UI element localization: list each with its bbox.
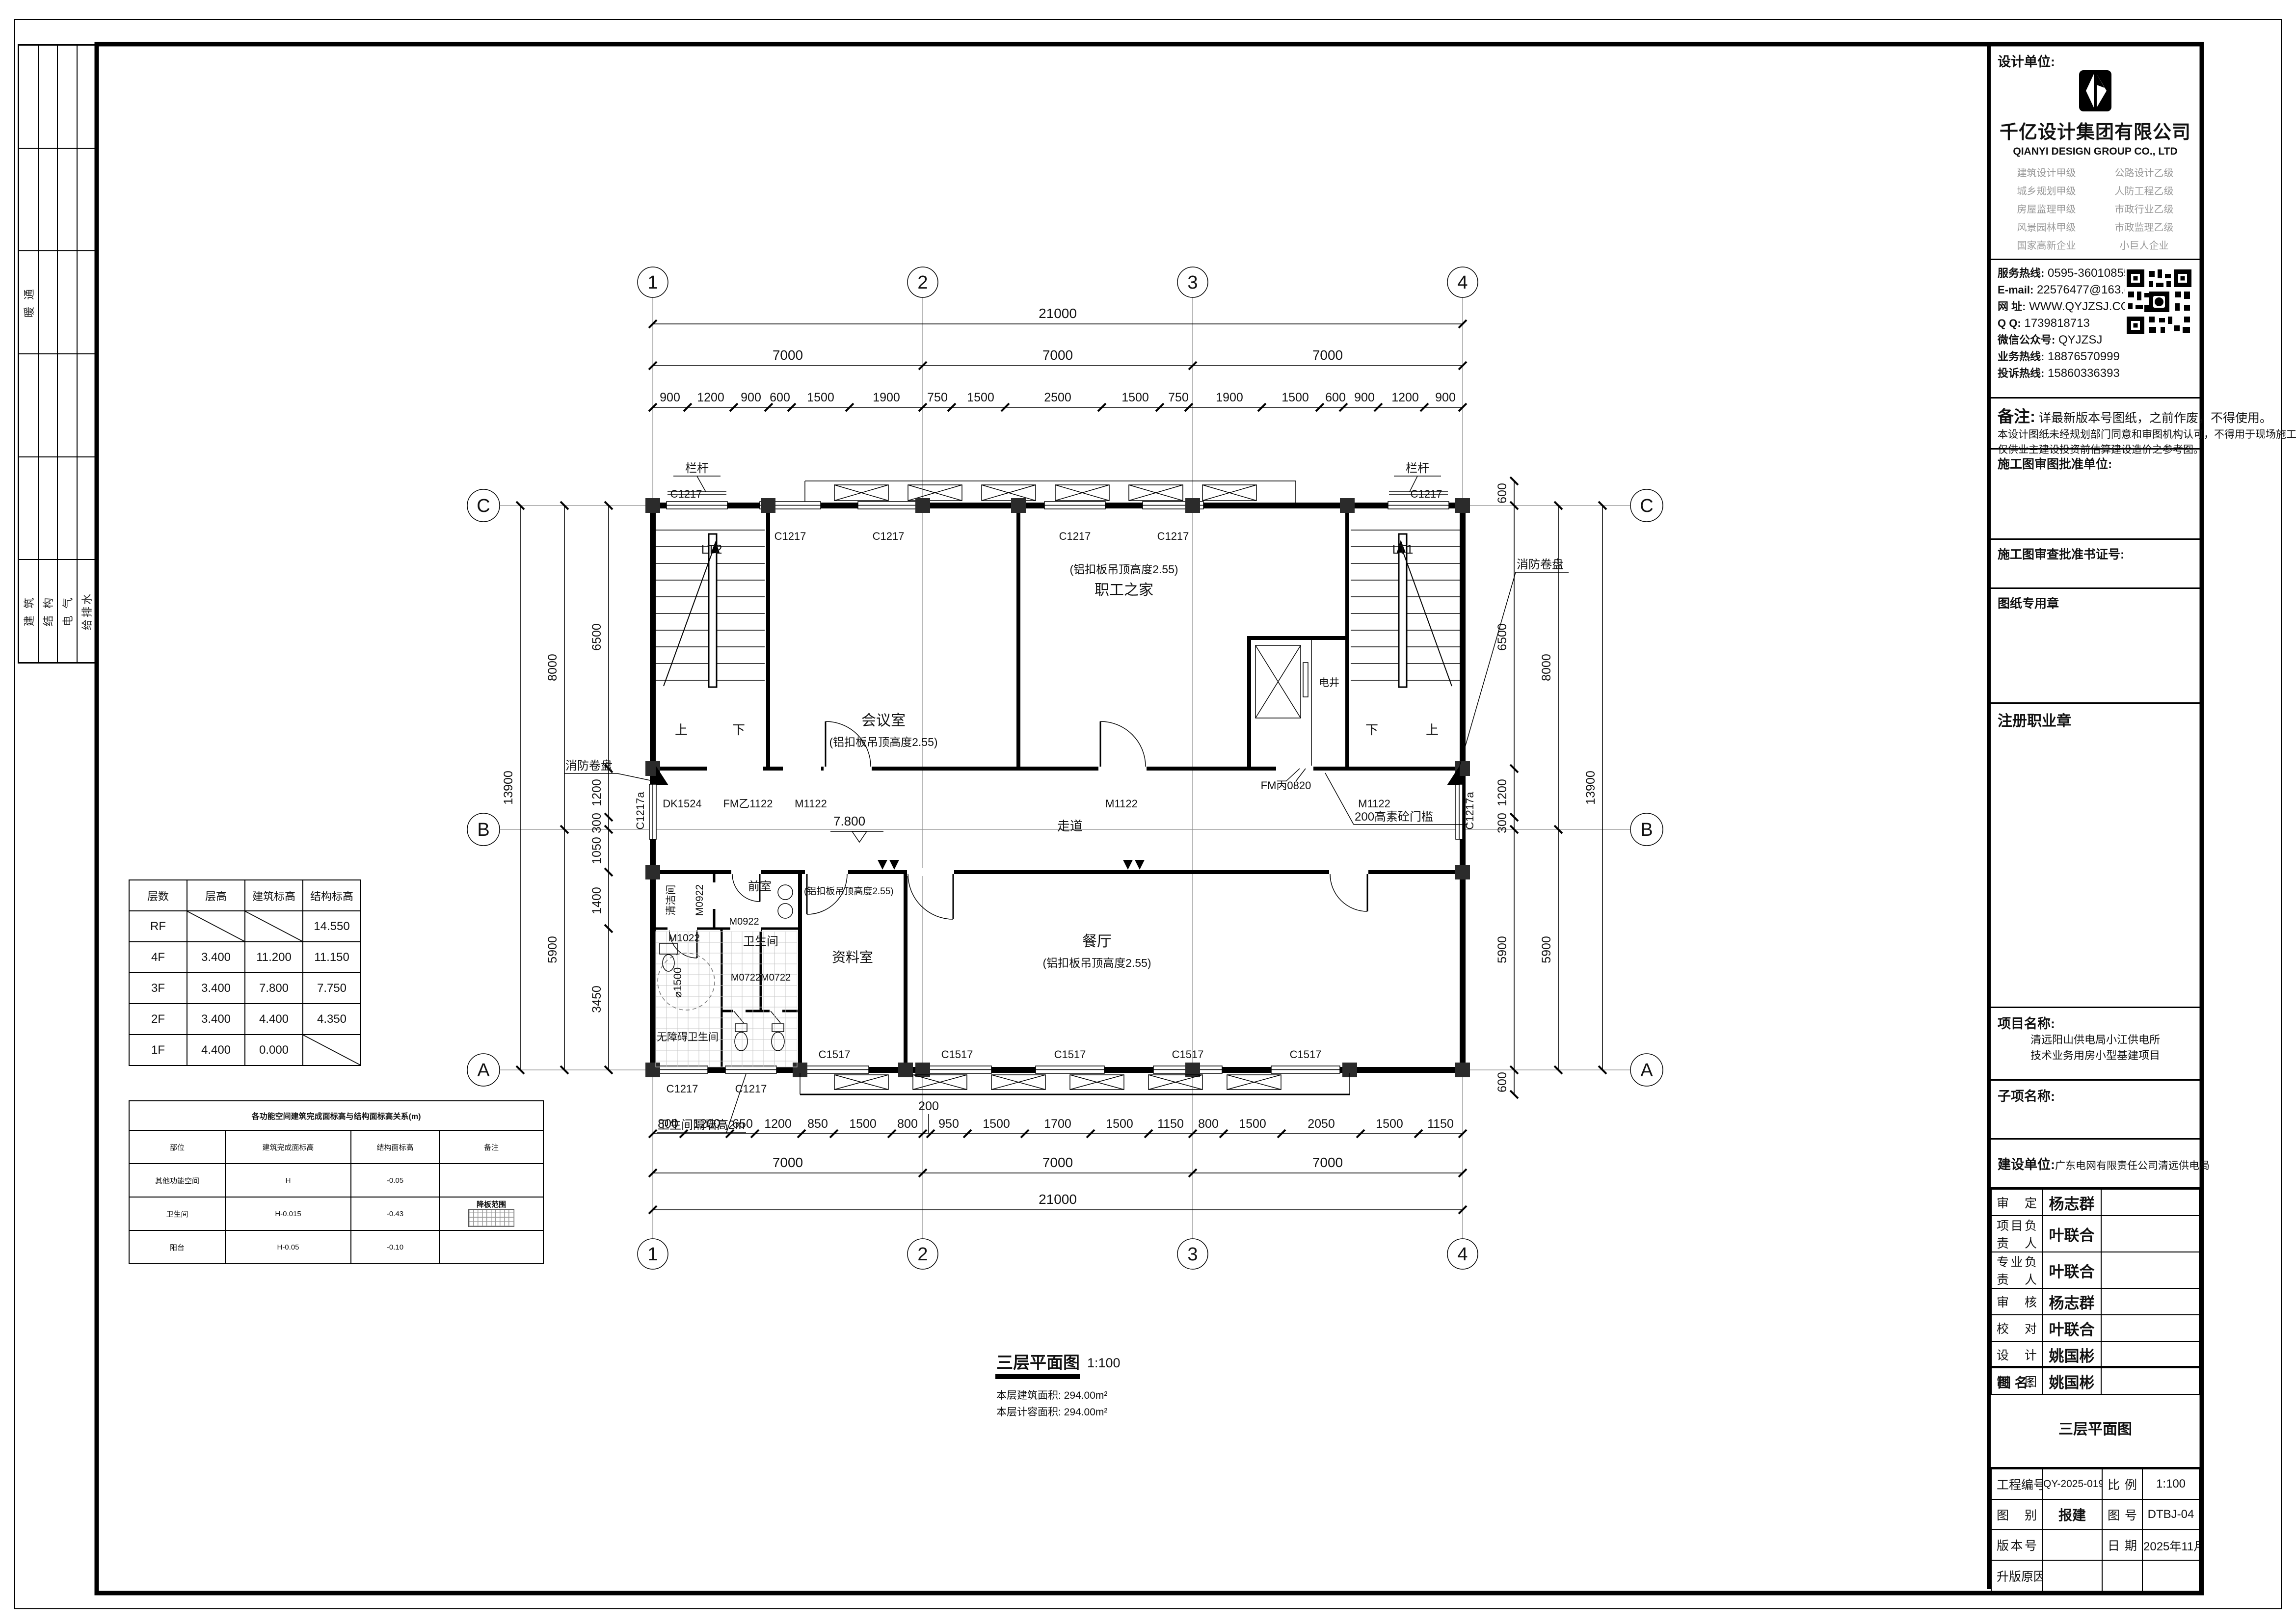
ceiling-note: (铝扣板吊顶高度2.55) bbox=[1069, 563, 1178, 576]
room-label: 会议室 bbox=[861, 713, 906, 729]
contact-label: 网 址: bbox=[1998, 300, 2026, 313]
sheet-info-section: 工程编号 QY-2025-019 比例 1:100 图别 报建 图号 DTBJ-… bbox=[1991, 1468, 2200, 1591]
personnel-name: 杨志群 bbox=[2042, 1288, 2101, 1315]
dim: 5900 bbox=[1540, 936, 1553, 963]
grid-label: A bbox=[1640, 1060, 1653, 1081]
strip-plumb: 给排水 bbox=[79, 592, 94, 630]
dim: 2050 bbox=[1308, 1117, 1335, 1131]
window-tag: C1217 bbox=[670, 488, 702, 500]
door-tag: FM乙1122 bbox=[723, 798, 773, 810]
dim: 1150 bbox=[1157, 1117, 1184, 1131]
dim: 1200 bbox=[1495, 779, 1509, 806]
balcony bbox=[800, 1073, 1350, 1094]
dim: 21000 bbox=[1039, 306, 1077, 321]
floor-cell: RF bbox=[129, 911, 187, 942]
grid-label: 3 bbox=[1187, 272, 1198, 293]
personnel-sign bbox=[2101, 1341, 2199, 1368]
sunken-slab-label: 降板范围 bbox=[440, 1199, 542, 1209]
floor-header: 层数 bbox=[129, 880, 187, 911]
dim: 1200 bbox=[590, 779, 604, 806]
remark-section: 备注: 详最新版本号图纸，之前作废，不得使用。 本设计图纸未经规划部门同意和审图… bbox=[1991, 399, 2200, 450]
grid-label: 1 bbox=[647, 1244, 658, 1265]
signature-strip: 暖 通 建 筑 结 构 电 气 给排水 bbox=[18, 44, 97, 664]
floor-cell: 3.400 bbox=[187, 942, 245, 973]
dim: 1500 bbox=[1376, 1117, 1403, 1131]
dim: 7000 bbox=[1312, 1155, 1343, 1170]
stair-label: LT2 bbox=[701, 542, 722, 557]
floor-cell: 3F bbox=[129, 973, 187, 1004]
dim: 300 bbox=[1495, 813, 1509, 833]
info-label: 比例 bbox=[2102, 1469, 2142, 1499]
stair-dir: 上 bbox=[1426, 722, 1439, 737]
qualification: 国家高新企业 bbox=[1998, 237, 2095, 255]
relation-cell: 卫生间 bbox=[129, 1197, 225, 1230]
floor-cell: 4.400 bbox=[187, 1035, 245, 1065]
shaft-label: 电井 bbox=[1319, 677, 1339, 689]
drawing-no-value: DTBJ-04 bbox=[2142, 1499, 2199, 1530]
personnel-sign bbox=[2101, 1189, 2199, 1216]
contact-label: 服务热线: bbox=[1998, 267, 2044, 279]
info-label: 工程编号 bbox=[1991, 1469, 2042, 1499]
drawing-sheet: 1 2 3 4 1 2 3 4 C B A C B A 21000 7000 7… bbox=[0, 0, 2296, 1624]
project-name-section: 项目名称: 清远阳山供电局小江供电所 技术业务用房小型基建项目 bbox=[1991, 1008, 2200, 1081]
sheet-border bbox=[15, 20, 2281, 1609]
floor-level-table: 层数 层高 建筑标高 结构标高 RF 14.550 4F 3.400 11.20… bbox=[129, 879, 361, 1066]
dim: 1200 bbox=[1391, 391, 1419, 404]
contact-value: WWW.QYJZSJ.COM bbox=[2029, 300, 2139, 313]
door-tag: M0722M0722 bbox=[731, 972, 791, 983]
dim: 1500 bbox=[967, 391, 994, 404]
floor-cell: 14.550 bbox=[303, 911, 361, 942]
qualification: 人防工程乙级 bbox=[2095, 183, 2193, 201]
dim: 600 bbox=[1495, 483, 1509, 504]
grid-label: B bbox=[1640, 820, 1653, 840]
dim: 7000 bbox=[773, 347, 803, 363]
remark-label: 备注: bbox=[1998, 407, 2035, 426]
door-tag: M1122 bbox=[1105, 798, 1138, 810]
window-tag: C1217 bbox=[1411, 488, 1442, 500]
stair-dir: 下 bbox=[732, 722, 745, 737]
contact-label: 投诉热线: bbox=[1998, 367, 2044, 379]
approval-no-section: 施工图审查批准书证号: bbox=[1991, 540, 2200, 589]
personnel-name: 叶联合 bbox=[2042, 1315, 2101, 1341]
window-tag: C1217a bbox=[1464, 792, 1476, 830]
dim: 1150 bbox=[1427, 1117, 1454, 1131]
personnel-sign bbox=[2101, 1216, 2199, 1252]
approval-unit-label: 施工图审图批准单位: bbox=[1998, 454, 2193, 472]
contact-value: 15860336393 bbox=[2048, 367, 2120, 380]
relation-cell: -0.43 bbox=[351, 1197, 439, 1230]
dim: 1200 bbox=[697, 391, 724, 404]
drawing-name-label: 图 名: bbox=[1998, 1372, 2193, 1391]
room-label: 走道 bbox=[1057, 819, 1083, 833]
approval-no-label: 施工图审查批准书证号: bbox=[1998, 545, 2193, 562]
project-no-value: QY-2025-019 bbox=[2042, 1469, 2102, 1499]
windows bbox=[649, 502, 1463, 1073]
contact-value: QYJZSJ bbox=[2058, 333, 2102, 346]
floor-cell: 0.000 bbox=[245, 1035, 303, 1065]
contact-label: E-mail: bbox=[1998, 284, 2033, 296]
window-tag: C1517 bbox=[819, 1048, 851, 1061]
personnel-name: 叶联合 bbox=[2042, 1216, 2101, 1252]
revision-value bbox=[2042, 1560, 2102, 1592]
note: 200高素砼门槛 bbox=[1355, 810, 1433, 824]
grid-label: 4 bbox=[1457, 1244, 1468, 1265]
contact-value: 18876570999 bbox=[2048, 350, 2120, 363]
dia-label: ⌀1500 bbox=[671, 967, 684, 998]
registered-seal-section: 注册职业章 bbox=[1991, 704, 2200, 1008]
relation-title: 各功能空间建筑完成面标高与结构面标高关系(m) bbox=[129, 1101, 543, 1130]
room-label: 卫生间 bbox=[743, 935, 778, 948]
dim: 5900 bbox=[546, 936, 560, 963]
drawing-name-section: 图 名: 三层平面图 bbox=[1991, 1367, 2200, 1468]
relation-cell: 降板范围 bbox=[439, 1197, 543, 1230]
subproject-label: 子项名称: bbox=[1998, 1086, 2193, 1105]
dim: 750 bbox=[927, 391, 948, 404]
dim: 1500 bbox=[983, 1117, 1010, 1131]
window-tag: C1217 bbox=[735, 1083, 767, 1095]
plan-title-scale: 1:100 bbox=[1087, 1356, 1121, 1370]
dim: 900 bbox=[1354, 391, 1375, 404]
grid-label: 2 bbox=[917, 272, 928, 293]
drawing-seal-section: 图纸专用章 bbox=[1991, 589, 2200, 704]
window-tag: C1217a bbox=[634, 792, 646, 830]
contact-value: 1739818713 bbox=[2024, 317, 2089, 330]
roof-parapet bbox=[667, 481, 1448, 504]
qualification: 小巨人企业 bbox=[2095, 237, 2193, 255]
personnel-name: 姚国彬 bbox=[2042, 1341, 2101, 1368]
date-value: 2025年11月 bbox=[2142, 1530, 2199, 1560]
stair-label: LT1 bbox=[1392, 542, 1414, 557]
dim: 200 bbox=[918, 1099, 939, 1113]
dim: 21000 bbox=[1039, 1192, 1077, 1207]
note: 卫生间隔墙高2m bbox=[658, 1118, 745, 1132]
dim: 7000 bbox=[1312, 347, 1343, 363]
dim: 600 bbox=[770, 391, 790, 404]
project-name-label: 项目名称: bbox=[1998, 1013, 2193, 1032]
dim: 8000 bbox=[1540, 654, 1553, 681]
dim: 800 bbox=[897, 1117, 918, 1131]
contact-label: Q Q: bbox=[1998, 317, 2021, 329]
grid-label: C bbox=[477, 496, 490, 516]
personnel-role: 校对 bbox=[1991, 1315, 2042, 1341]
room-label: 无障碍卫生间 bbox=[657, 1032, 719, 1043]
window-tag: C1217 bbox=[1059, 530, 1091, 542]
grid-label: A bbox=[477, 1060, 490, 1081]
window-tag: C1517 bbox=[1054, 1048, 1086, 1061]
plan-area1: 本层建筑面积: 294.00m² bbox=[996, 1390, 1107, 1401]
floor-cell bbox=[303, 1035, 361, 1065]
floor-cell: 2F bbox=[129, 1004, 187, 1035]
door-tag: FM丙0820 bbox=[1261, 779, 1311, 792]
floor-header: 层高 bbox=[187, 880, 245, 911]
elevator bbox=[1249, 638, 1347, 772]
dim: 1500 bbox=[807, 391, 834, 404]
building: 栏杆 栏杆 C1217 C1217 C1217 C1217 C1217 C121… bbox=[564, 462, 1569, 1133]
relation-cell: -0.05 bbox=[351, 1164, 439, 1197]
dim: 1900 bbox=[873, 391, 900, 404]
window-tag: C1217 bbox=[667, 1083, 698, 1095]
scale-value: 1:100 bbox=[2142, 1469, 2199, 1499]
dim: 7000 bbox=[773, 1155, 803, 1170]
dim: 750 bbox=[1168, 391, 1189, 404]
strip-hvac: 暖 通 bbox=[21, 287, 36, 318]
title-block: 设计单位: 千亿设计集团有限公司 QIANYI DESIGN GROUP CO.… bbox=[1987, 46, 2200, 1589]
personnel-sign bbox=[2101, 1315, 2199, 1341]
plan-title-text: 三层平面图 bbox=[996, 1354, 1080, 1372]
window-tag: C1217 bbox=[873, 530, 905, 542]
dim: 13900 bbox=[502, 771, 515, 805]
dim: 1900 bbox=[1216, 391, 1243, 404]
floor-cell: 11.150 bbox=[303, 942, 361, 973]
dim: 7000 bbox=[1042, 347, 1073, 363]
qualification: 建筑设计甲级 bbox=[1998, 164, 2095, 183]
qualification: 市政监理乙级 bbox=[2095, 219, 2193, 237]
personnel-name: 叶联合 bbox=[2042, 1252, 2101, 1288]
dim-left: 6500 1200 300 1050 1400 3450 8000 5900 1… bbox=[502, 502, 613, 1074]
floor-cell bbox=[245, 911, 303, 942]
qualification: 公路设计乙级 bbox=[2095, 164, 2193, 183]
remark-text: 本设计图纸未经规划部门同意和审图机构认可，不得用于现场施工， bbox=[1998, 427, 2193, 442]
fire-reel-label: 消防卷盘 bbox=[565, 759, 613, 772]
dim: 800 bbox=[1198, 1117, 1219, 1131]
relation-header: 备注 bbox=[439, 1130, 543, 1164]
strip-arch: 建 筑 bbox=[21, 596, 36, 626]
category-value: 报建 bbox=[2042, 1499, 2102, 1530]
grid-label: 2 bbox=[917, 1244, 928, 1265]
level-label: 7.800 bbox=[833, 814, 865, 828]
relation-cell bbox=[439, 1230, 543, 1264]
relation-header: 结构面标高 bbox=[351, 1130, 439, 1164]
door-tag: M1122 bbox=[1358, 798, 1390, 810]
floor-cell: 3.400 bbox=[187, 973, 245, 1004]
door-tag: M0922 bbox=[729, 916, 759, 927]
personnel-role: 审核 bbox=[1991, 1288, 2042, 1315]
personnel-role: 专业负责人 bbox=[1991, 1252, 2042, 1288]
room-label: 餐厅 bbox=[1082, 933, 1112, 950]
railing-label: 栏杆 bbox=[1406, 462, 1429, 475]
approval-unit-section: 施工图审图批准单位: bbox=[1991, 450, 2200, 540]
dim: 300 bbox=[590, 813, 604, 833]
qr-code bbox=[2125, 268, 2193, 336]
ceiling-note: (铝扣板吊顶高度2.55) bbox=[1042, 957, 1151, 969]
plan-canvas: 1 2 3 4 1 2 3 4 C B A C B A 21000 7000 7… bbox=[0, 0, 2296, 1624]
info-label: 版本号 bbox=[1991, 1530, 2042, 1560]
ceiling-note: (铝扣板吊顶高度2.55) bbox=[804, 886, 894, 897]
floor-cell: 4.350 bbox=[303, 1004, 361, 1035]
stair-dir: 上 bbox=[675, 722, 688, 737]
plan-title: 三层平面图 1:100 本层建筑面积: 294.00m² 本层计容面积: 294… bbox=[995, 1354, 1121, 1418]
door-tag: M0922 bbox=[694, 884, 705, 916]
personnel-role: 项目负责人 bbox=[1991, 1216, 2042, 1252]
drawing-name-value: 三层平面图 bbox=[1998, 1417, 2193, 1438]
relation-cell: 其他功能空间 bbox=[129, 1164, 225, 1197]
finish-level-table: 各功能空间建筑完成面标高与结构面标高关系(m) 部位 建筑完成面标高 结构面标高… bbox=[129, 1100, 544, 1264]
door-tag: M1122 bbox=[795, 798, 827, 810]
personnel-section: 审定杨志群 项目负责人叶联合 专业负责人叶联合 审核杨志群 校对叶联合 设计姚国… bbox=[1991, 1189, 2200, 1367]
project-name-line2: 技术业务用房小型基建项目 bbox=[1998, 1048, 2193, 1064]
dim: 900 bbox=[660, 391, 680, 404]
dim: 7000 bbox=[1042, 1155, 1073, 1170]
dim-bottom: 800 1200 650 1200 850 1500 800 200 950 1… bbox=[649, 1099, 1467, 1214]
design-unit-section: 设计单位: 千亿设计集团有限公司 QIANYI DESIGN GROUP CO.… bbox=[1991, 46, 2200, 260]
project-name-line1: 清远阳山供电局小江供电所 bbox=[1998, 1032, 2193, 1048]
relation-header: 部位 bbox=[129, 1130, 225, 1164]
relation-cell: H-0.015 bbox=[225, 1197, 351, 1230]
relation-cell: H-0.05 bbox=[225, 1230, 351, 1264]
dim-top: 21000 7000 7000 7000 900 1200 900 600 15… bbox=[649, 306, 1467, 411]
relation-header: 建筑完成面标高 bbox=[225, 1130, 351, 1164]
window-tag: C1217 bbox=[774, 530, 806, 542]
relation-cell bbox=[439, 1164, 543, 1197]
remark-text: 详最新版本号图纸，之前作废，不得使用。 bbox=[2039, 411, 2272, 425]
room-label: 清洁间 bbox=[666, 885, 677, 916]
dim: 1500 bbox=[1106, 1117, 1133, 1131]
strip-struct: 结 构 bbox=[40, 596, 55, 626]
dim: 1500 bbox=[1121, 391, 1149, 404]
dim: 900 bbox=[1435, 391, 1456, 404]
qualification: 城乡规划甲级 bbox=[1998, 183, 2095, 201]
dim: 8000 bbox=[546, 654, 560, 681]
railing-label: 栏杆 bbox=[685, 462, 709, 475]
dim: 6500 bbox=[1495, 623, 1509, 651]
symbols bbox=[656, 766, 1460, 870]
floor-cell: 4.400 bbox=[245, 1004, 303, 1035]
floor-cell: 3.400 bbox=[187, 1004, 245, 1035]
dim: 5900 bbox=[1495, 936, 1509, 963]
dim: 13900 bbox=[1584, 771, 1598, 805]
grid-label: 3 bbox=[1187, 1244, 1198, 1265]
info-label: 图号 bbox=[2102, 1499, 2142, 1530]
relation-cell: 阳台 bbox=[129, 1230, 225, 1264]
grid-label: 1 bbox=[647, 272, 658, 293]
floor-cell: 7.800 bbox=[245, 973, 303, 1004]
dim: 1500 bbox=[1239, 1117, 1266, 1131]
dim: 1050 bbox=[590, 837, 604, 864]
grid-label: 4 bbox=[1457, 272, 1468, 293]
floor-cell bbox=[187, 911, 245, 942]
qualification: 风景园林甲级 bbox=[1998, 219, 2095, 237]
dim: 1500 bbox=[849, 1117, 877, 1131]
qualification: 房屋监理甲级 bbox=[1998, 201, 2095, 219]
dim: 600 bbox=[1325, 391, 1346, 404]
contact-value: 0595-36010855 bbox=[2048, 266, 2130, 280]
dim: 1700 bbox=[1044, 1117, 1071, 1131]
contact-label: 微信公众号: bbox=[1998, 334, 2055, 346]
registered-seal-label: 注册职业章 bbox=[1998, 709, 2193, 730]
floor-cell: 1F bbox=[129, 1035, 187, 1065]
personnel-name: 杨志群 bbox=[2042, 1189, 2101, 1216]
window-tag: C1517 bbox=[941, 1048, 973, 1061]
company-logo bbox=[1998, 70, 2193, 114]
company-name-cn: 千亿设计集团有限公司 bbox=[1998, 117, 2193, 144]
relation-cell: -0.10 bbox=[351, 1230, 439, 1264]
floor-cell: 4F bbox=[129, 942, 187, 973]
dim: 2500 bbox=[1044, 391, 1071, 404]
floor-header: 建筑标高 bbox=[245, 880, 303, 911]
window-tag: C1517 bbox=[1172, 1048, 1204, 1061]
dim: 850 bbox=[807, 1117, 828, 1131]
dim: 3450 bbox=[590, 985, 604, 1013]
client-label: 建设单位: bbox=[1998, 1157, 2055, 1172]
window-tag: C1217 bbox=[1157, 530, 1189, 542]
personnel-sign bbox=[2101, 1252, 2199, 1288]
floor-cell: 11.200 bbox=[245, 942, 303, 973]
room-label: 前室 bbox=[748, 880, 772, 893]
dim: 950 bbox=[938, 1117, 959, 1131]
personnel-role: 设计 bbox=[1991, 1341, 2042, 1368]
client-section: 建设单位:广东电网有限责任公司清远供电局 bbox=[1991, 1140, 2200, 1189]
personnel-role: 审定 bbox=[1991, 1189, 2042, 1216]
dim: 1200 bbox=[764, 1117, 792, 1131]
logo-icon bbox=[2079, 70, 2111, 111]
subproject-section: 子项名称: bbox=[1991, 1081, 2200, 1140]
fire-reel-label: 消防卷盘 bbox=[1517, 558, 1564, 571]
floor-header: 结构标高 bbox=[303, 880, 361, 911]
company-name-en: QIANYI DESIGN GROUP CO., LTD bbox=[1998, 146, 2193, 158]
contact-label: 业务热线: bbox=[1998, 350, 2044, 363]
grid-label: C bbox=[1640, 496, 1653, 516]
dim: 600 bbox=[1495, 1072, 1509, 1092]
version-value bbox=[2042, 1530, 2102, 1560]
personnel-sign bbox=[2101, 1288, 2199, 1315]
dim: 6500 bbox=[590, 623, 604, 651]
floor-cell: 7.750 bbox=[303, 973, 361, 1004]
info-label: 日期 bbox=[2102, 1530, 2142, 1560]
room-label: 资料室 bbox=[832, 950, 873, 965]
window-tag: C1517 bbox=[1290, 1048, 1322, 1061]
client-value: 广东电网有限责任公司清远供电局 bbox=[2055, 1160, 2210, 1171]
room-label: 职工之家 bbox=[1095, 582, 1153, 598]
strip-elec: 电 气 bbox=[59, 596, 75, 626]
grid-label: B bbox=[477, 820, 489, 840]
plan-area2: 本层计容面积: 294.00m² bbox=[996, 1407, 1107, 1418]
design-unit-label: 设计单位: bbox=[1998, 51, 2193, 70]
door-tag: M1022 bbox=[668, 932, 700, 944]
ceiling-note: (铝扣板吊顶高度2.55) bbox=[829, 736, 937, 748]
info-label: 升版原因 bbox=[1991, 1560, 2042, 1592]
drawing-seal-label: 图纸专用章 bbox=[1998, 594, 2193, 612]
door-tag: DK1524 bbox=[663, 798, 702, 810]
info-label: 图别 bbox=[1991, 1499, 2042, 1530]
dim: 900 bbox=[741, 391, 761, 404]
hatch-swatch bbox=[468, 1209, 514, 1227]
qualification: 市政行业乙级 bbox=[2095, 201, 2193, 219]
stair-dir: 下 bbox=[1365, 722, 1378, 737]
contact-section: 服务热线: 0595-36010855 E-mail: 22576477@163… bbox=[1991, 260, 2200, 399]
dim: 1400 bbox=[590, 887, 604, 914]
relation-cell: H bbox=[225, 1164, 351, 1197]
dim: 1500 bbox=[1281, 391, 1309, 404]
